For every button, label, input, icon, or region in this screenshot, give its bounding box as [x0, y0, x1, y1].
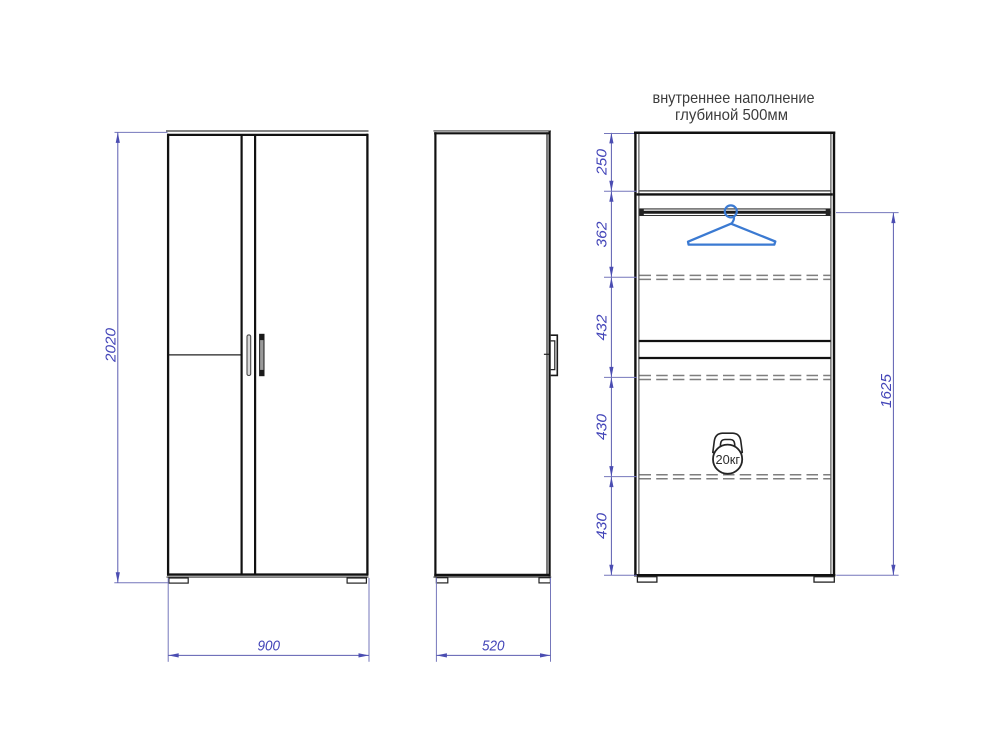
svg-text:432: 432: [595, 315, 611, 341]
svg-text:20кг: 20кг: [716, 452, 741, 467]
svg-text:глубиной 500мм: глубиной 500мм: [675, 107, 788, 124]
svg-text:2020: 2020: [102, 327, 119, 363]
svg-text:520: 520: [482, 638, 505, 655]
svg-text:250: 250: [595, 149, 611, 176]
svg-text:430: 430: [595, 513, 611, 539]
svg-text:362: 362: [595, 222, 611, 248]
svg-text:900: 900: [258, 638, 281, 655]
svg-text:430: 430: [595, 414, 611, 440]
svg-text:1625: 1625: [879, 373, 895, 408]
svg-text:внутреннее наполнение: внутреннее наполнение: [653, 90, 815, 107]
